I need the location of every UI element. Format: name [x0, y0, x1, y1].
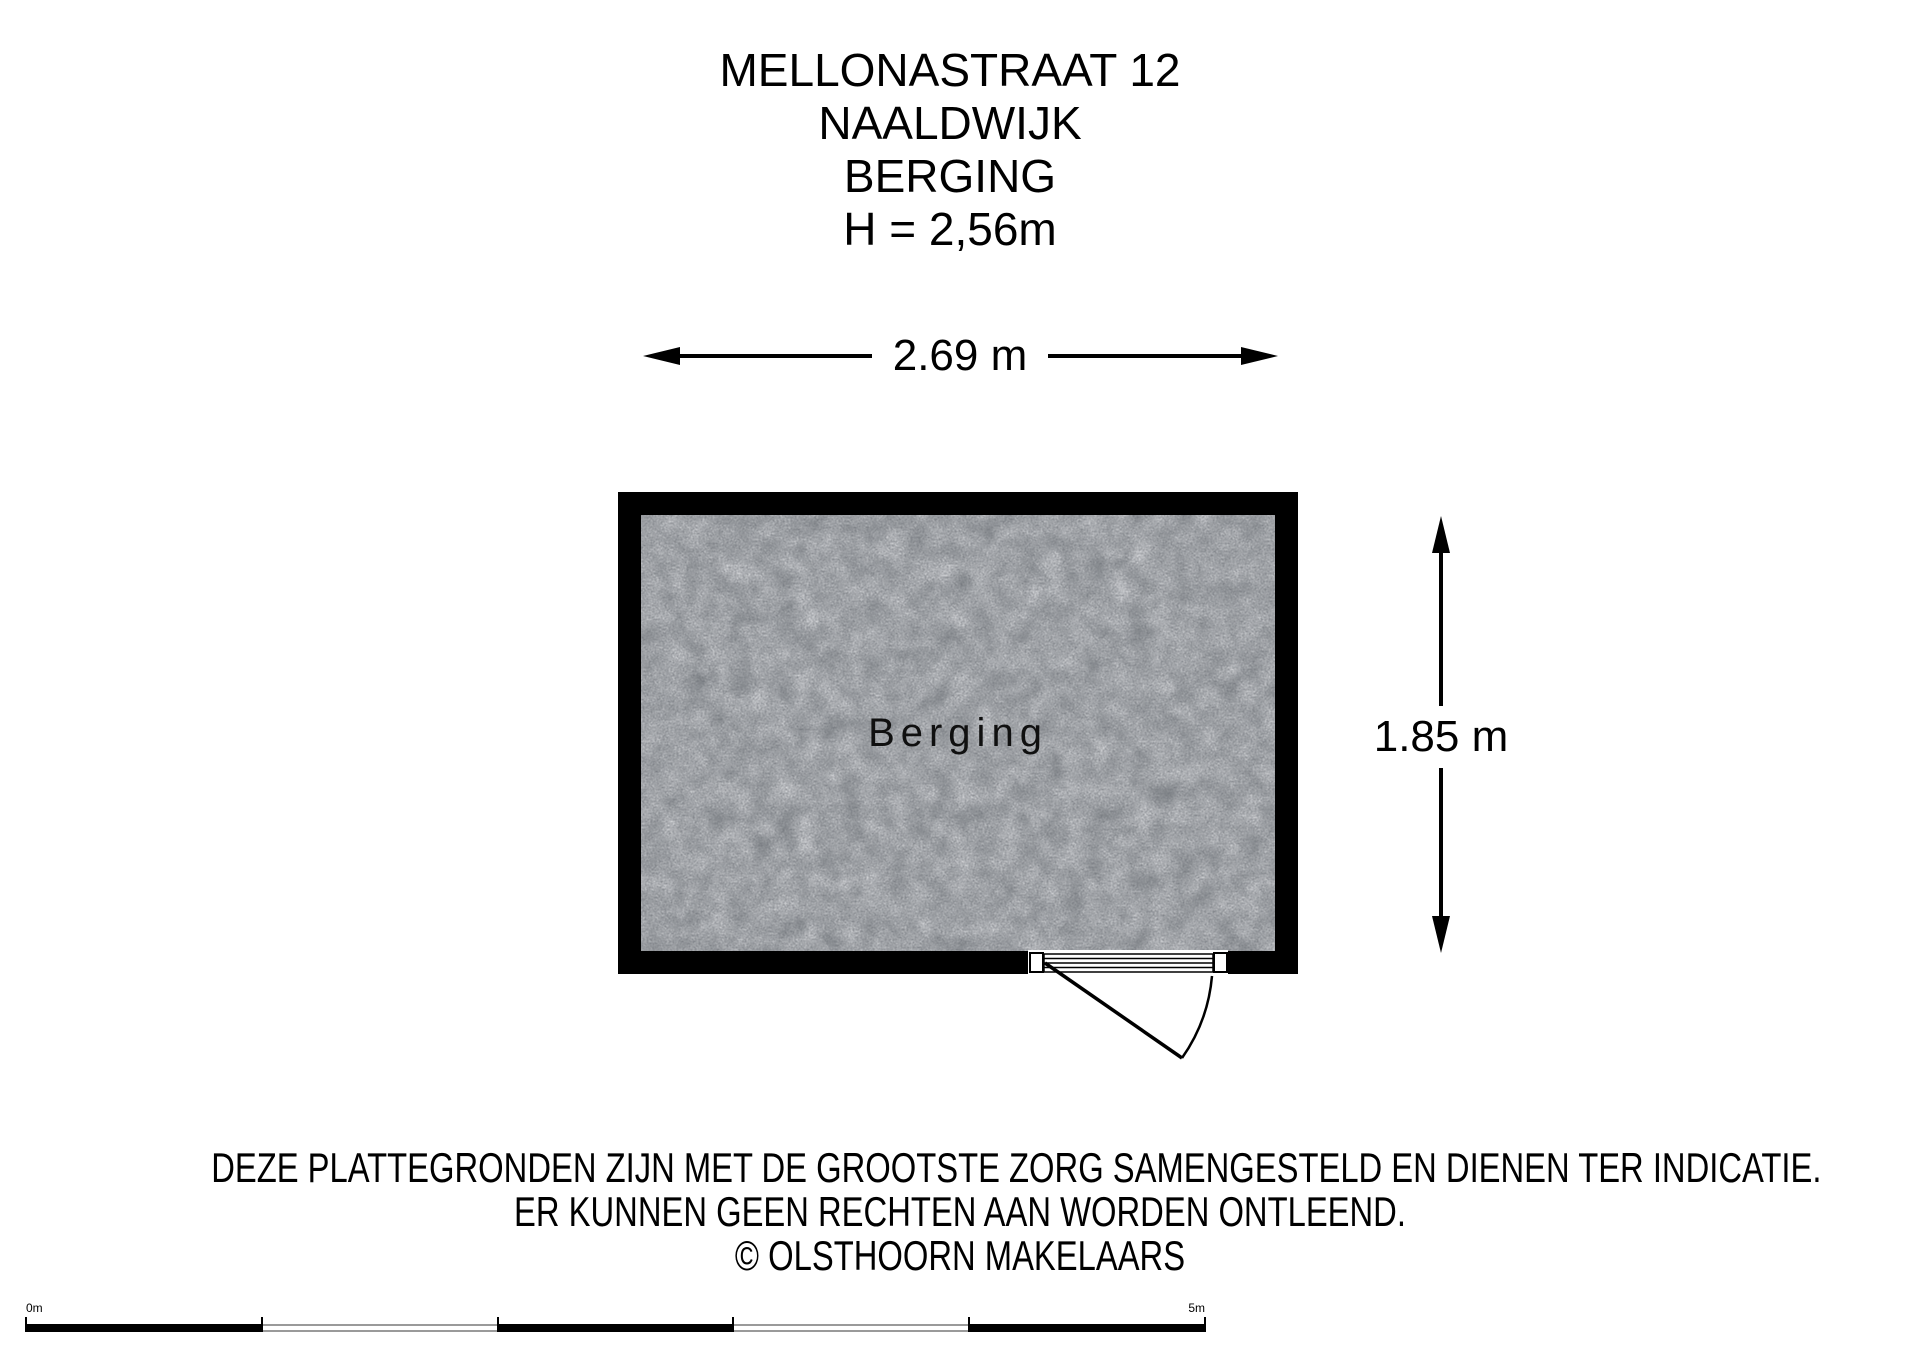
scale-segment	[262, 1324, 498, 1332]
scale-tick	[497, 1317, 499, 1332]
room-type-line: BERGING	[10, 150, 1890, 203]
title-block: MELLONASTRAAT 12 NAALDWIJK BERGING H = 2…	[10, 44, 1890, 256]
disclaimer: DEZE PLATTEGRONDEN ZIJN MET DE GROOTSTE …	[0, 1146, 1920, 1278]
ceiling-height-line: H = 2,56m	[10, 203, 1890, 256]
scale-segment	[969, 1324, 1205, 1332]
scale-segment	[498, 1324, 734, 1332]
scale-tick	[25, 1317, 27, 1332]
room-label: Berging	[868, 711, 1048, 756]
disclaimer-line-3: © OLSTHOORN MAKELAARS	[211, 1234, 1709, 1278]
scale-tick	[968, 1317, 970, 1332]
scale-segment	[26, 1324, 262, 1332]
city-line: NAALDWIJK	[10, 97, 1890, 150]
scale-segments	[26, 1324, 1205, 1332]
door-leaf	[1045, 963, 1182, 1058]
height-dimension-label: 1.85 m	[1331, 711, 1551, 763]
room-floor: Berging	[641, 515, 1275, 951]
address-line: MELLONASTRAAT 12	[10, 44, 1890, 97]
disclaimer-line-1: DEZE PLATTEGRONDEN ZIJN MET DE GROOTSTE …	[211, 1146, 1709, 1190]
width-dimension-label: 2.69 m	[850, 330, 1070, 382]
scale-track	[26, 1317, 1205, 1332]
disclaimer-line-2: ER KUNNEN GEEN RECHTEN AAN WORDEN ONTLEE…	[211, 1190, 1709, 1234]
scale-tick	[1204, 1317, 1206, 1332]
door-swing-arc	[1182, 976, 1212, 1058]
scale-tick	[732, 1317, 734, 1332]
scale-bar: 0m 5m	[26, 1302, 1205, 1332]
scale-start-label: 0m	[26, 1302, 43, 1315]
scale-segment	[733, 1324, 969, 1332]
room-outline: Berging	[618, 492, 1298, 974]
scale-end-label: 5m	[1188, 1302, 1205, 1315]
scale-tick	[261, 1317, 263, 1332]
